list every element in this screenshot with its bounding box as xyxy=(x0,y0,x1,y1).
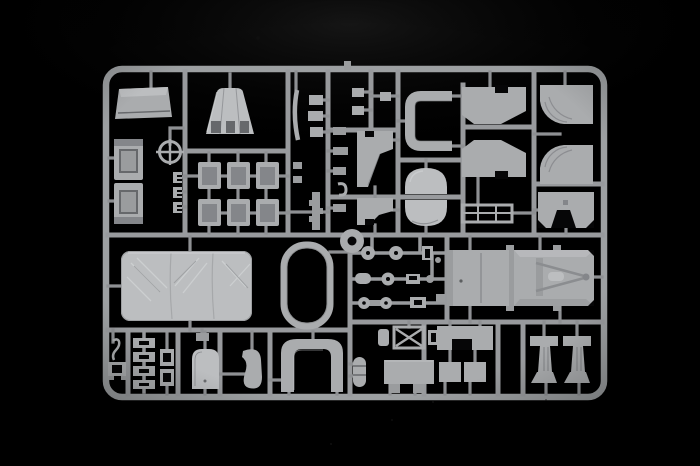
vignette-overlay xyxy=(0,0,700,466)
sprue-photo-svg xyxy=(0,0,700,466)
sprue-photo xyxy=(0,0,700,466)
